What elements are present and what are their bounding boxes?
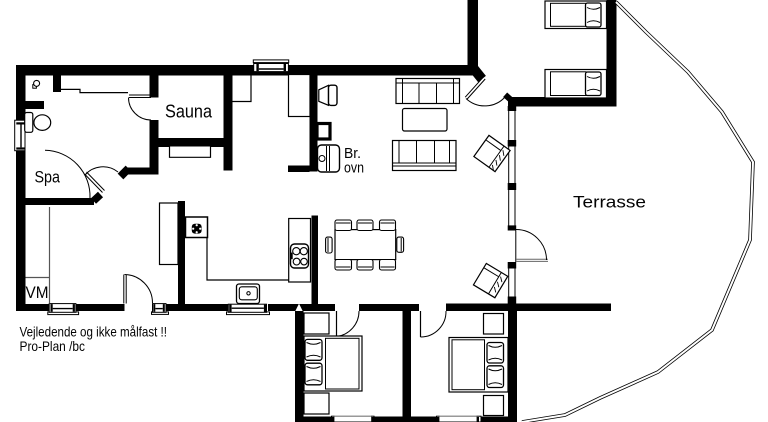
svg-text:Pro-Plan /bc: Pro-Plan /bc bbox=[20, 338, 86, 354]
svg-text:ovn: ovn bbox=[344, 160, 364, 177]
svg-text:Spa: Spa bbox=[35, 168, 61, 187]
svg-text:Terrasse: Terrasse bbox=[573, 193, 646, 212]
svg-text:VM: VM bbox=[26, 283, 49, 302]
svg-text:Sauna: Sauna bbox=[165, 102, 213, 122]
